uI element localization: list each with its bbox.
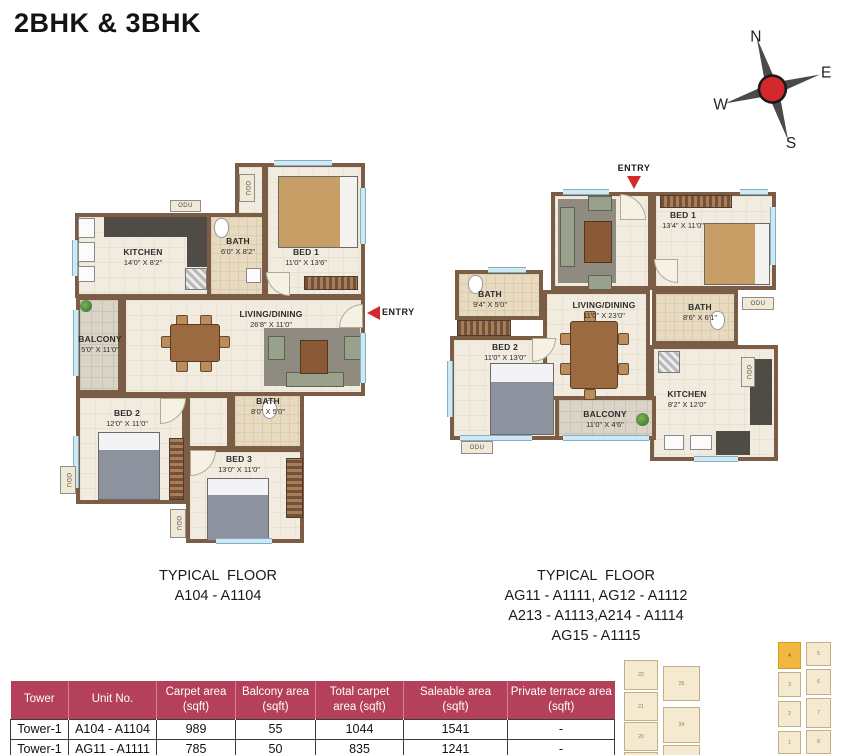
washer-icon — [246, 268, 261, 283]
bed-icon — [490, 363, 554, 435]
table-row: Tower-1 AG11 - A1111 785 50 835 1241 - — [11, 739, 615, 755]
chair-icon — [219, 336, 230, 348]
bed-icon — [98, 432, 160, 500]
keyplan-block: 24 — [663, 707, 700, 743]
table-row: Tower-1 A104 - A1104 989 55 1044 1541 - — [11, 719, 615, 739]
window — [360, 333, 366, 383]
kitchen-platform — [185, 268, 207, 290]
compass-n-label: N — [750, 28, 761, 45]
plant-icon — [636, 413, 649, 426]
cell-total-carpet: 1044 — [316, 719, 404, 739]
chair-icon — [200, 361, 212, 372]
col-carpet-area: Carpet area (sqft) — [157, 681, 236, 719]
col-tower: Tower — [11, 681, 69, 719]
keyplan-block-highlighted: 4 — [778, 642, 801, 669]
odu-label: ODU — [745, 365, 751, 380]
room-label-bed2: BED 2 12'0" X 11'0" — [106, 408, 148, 428]
cell-unit: A104 - A1104 — [69, 719, 157, 739]
keyplan-block: 6 — [806, 669, 831, 695]
odu-box: ODU — [742, 297, 774, 310]
room-label-bath2: BATH 8'0" X 5'0" — [251, 396, 285, 416]
room-label-bed1: BED 1 13'4" X 11'0" — [662, 210, 704, 230]
cell-private-terrace: - — [508, 739, 615, 755]
wardrobe — [286, 458, 303, 518]
odu-box: ODU — [239, 174, 255, 202]
keyplan-block: 25 — [663, 666, 700, 701]
compass-w-label: W — [713, 97, 728, 114]
room-label-living: LIVING/DINING 26'8" X 11'0" — [239, 309, 302, 329]
coffee-table-icon — [584, 221, 612, 263]
keyplan-block: 5 — [806, 642, 831, 666]
kitchen-counter — [187, 237, 207, 267]
odu-label: ODU — [175, 516, 181, 531]
odu-box: ODU — [461, 441, 493, 454]
bed-icon — [207, 478, 269, 541]
odu-label: ODU — [751, 301, 766, 307]
cell-unit: AG11 - A1111 — [69, 739, 157, 755]
odu-box: ODU — [170, 509, 186, 538]
window — [72, 240, 78, 276]
odu-box: ODU — [170, 200, 201, 212]
keyplan-block: 20 — [624, 722, 658, 751]
keyplan-block: 2 — [778, 701, 801, 727]
cell-carpet: 989 — [157, 719, 236, 739]
cell-tower: Tower-1 — [11, 739, 69, 755]
toilet-icon — [214, 218, 229, 238]
bed-icon — [278, 176, 358, 248]
floorplan-right: ODU ODU ODU BED 1 13'4" X 11'0" BATH 9'4… — [448, 163, 780, 463]
area-table-header: Tower Unit No. Carpet area (sqft) Balcon… — [11, 681, 615, 719]
cell-balcony: 55 — [236, 719, 316, 739]
fridge-icon — [78, 218, 95, 238]
window — [216, 538, 272, 544]
col-private-terrace-area: Private terrace area (sqft) — [508, 681, 615, 719]
bed-icon — [704, 223, 770, 285]
chair-icon — [618, 333, 629, 345]
cell-balcony: 50 — [236, 739, 316, 755]
entry-label: ENTRY — [618, 163, 651, 173]
compass-rose: N E W S — [700, 24, 850, 152]
keyplan-block: 1 — [778, 731, 801, 754]
window — [274, 160, 332, 166]
odu-box: ODU — [60, 466, 76, 494]
plant-icon — [80, 300, 92, 312]
odu-label: ODU — [178, 203, 193, 209]
coffee-table-icon — [300, 340, 328, 374]
odu-label: ODU — [65, 473, 71, 488]
window — [770, 207, 776, 265]
keyplan-block: 26 — [663, 745, 700, 755]
cell-carpet: 785 — [157, 739, 236, 755]
cell-total-carpet: 835 — [316, 739, 404, 755]
compass-star — [709, 24, 835, 152]
compass-s-label: S — [786, 135, 796, 152]
keyplan-block: 21 — [624, 692, 658, 721]
keyplan-block: 22 — [624, 660, 658, 690]
wardrobe — [660, 195, 732, 208]
room-label-bath-left: BATH 9'4" X 5'0" — [473, 289, 507, 309]
page-title: 2BHK & 3BHK — [14, 8, 201, 39]
chair-icon — [618, 363, 629, 375]
keyplan-block: 8 — [806, 730, 831, 754]
window — [447, 361, 453, 417]
cell-private-terrace: - — [508, 719, 615, 739]
armchair-icon — [588, 275, 612, 290]
keyplan-block: 7 — [806, 698, 831, 728]
room-label-kitchen: KITCHEN 8'2" X 12'0" — [667, 389, 706, 409]
room-label-bath1: BATH 6'0" X 8'2" — [221, 236, 255, 256]
sofa-icon — [560, 207, 575, 267]
room-label-living: LIVING/DINING 11'0" X 23'0" — [572, 300, 635, 320]
kitchen-platform — [658, 351, 680, 373]
room-label-bath-right: BATH 8'6" X 6'1" — [683, 302, 717, 322]
wardrobe — [457, 320, 511, 336]
chair-icon — [584, 389, 596, 400]
odu-label: ODU — [470, 445, 485, 451]
dining-table-icon — [570, 321, 618, 389]
dining-table-icon — [170, 324, 220, 362]
area-table: Tower Unit No. Carpet area (sqft) Balcon… — [10, 681, 615, 755]
wardrobe — [169, 438, 184, 500]
stove-icon — [78, 242, 95, 262]
cell-saleable: 1241 — [404, 739, 508, 755]
armchair-icon — [588, 196, 612, 211]
odu-label: ODU — [244, 181, 250, 196]
entry-arrow-icon — [367, 306, 380, 320]
sink-icon — [78, 266, 95, 282]
chair-icon — [176, 361, 188, 372]
caption-left-plan: TYPICAL FLOOR A104 - A1104 — [58, 566, 378, 606]
col-unit-no: Unit No. — [69, 681, 157, 719]
brochure-page: 2BHK & 3BHK N E W S — [0, 0, 851, 755]
room-corridor — [186, 394, 231, 450]
room-label-balcony: BALCONY 5'0" X 11'0" — [78, 334, 121, 354]
col-saleable-area: Saleable area (sqft) — [404, 681, 508, 719]
sink-icon — [664, 435, 684, 450]
col-balcony-area: Balcony area (sqft) — [236, 681, 316, 719]
cell-tower: Tower-1 — [11, 719, 69, 739]
odu-box: ODU — [741, 357, 755, 387]
cell-saleable: 1541 — [404, 719, 508, 739]
wardrobe — [304, 276, 358, 290]
room-label-balcony: BALCONY 11'0" X 4'6" — [583, 409, 626, 429]
col-total-carpet-area: Total carpet area (sqft) — [316, 681, 404, 719]
window — [488, 267, 526, 273]
room-label-kitchen: KITCHEN 14'0" X 8'2" — [123, 247, 162, 267]
kitchen-counter — [716, 431, 750, 455]
room-label-bed1: BED 1 11'0" X 13'6" — [285, 247, 327, 267]
room-label-bed2: BED 2 11'0" X 13'0" — [484, 342, 526, 362]
kitchen-counter — [104, 217, 207, 237]
sofa-icon — [286, 372, 344, 387]
window — [563, 435, 649, 441]
floorplan-left: ODU ODU ODU ODU KITCHEN 14'0" X 8'2" BAT… — [58, 148, 392, 550]
window — [740, 189, 768, 195]
window — [563, 189, 609, 195]
caption-right-plan: TYPICAL FLOOR AG11 - A1111, AG12 - A1112… — [430, 566, 762, 646]
entry-label: ENTRY — [382, 307, 415, 317]
compass-e-label: E — [821, 65, 831, 82]
entry-arrow-icon — [627, 176, 641, 189]
sofa-icon — [268, 336, 285, 360]
room-label-bed3: BED 3 13'0" X 11'0" — [218, 454, 260, 474]
window — [694, 456, 738, 462]
window — [360, 188, 366, 244]
stove-icon — [690, 435, 712, 450]
keyplan-block: 3 — [778, 672, 801, 697]
sofa-icon — [344, 336, 361, 360]
